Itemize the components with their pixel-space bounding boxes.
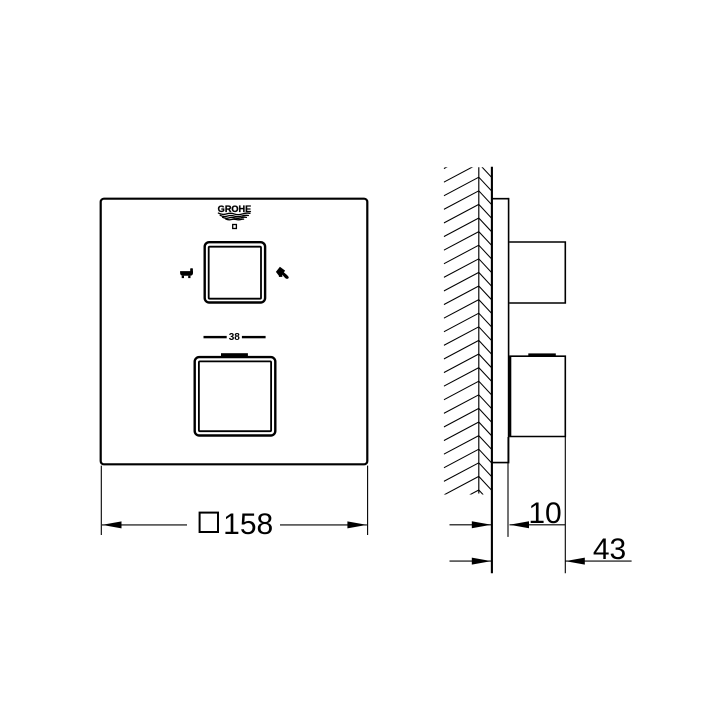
svg-text:43: 43 [593, 533, 626, 566]
svg-text:38: 38 [229, 332, 241, 343]
svg-text:158: 158 [223, 508, 273, 541]
svg-text:10: 10 [528, 497, 561, 530]
